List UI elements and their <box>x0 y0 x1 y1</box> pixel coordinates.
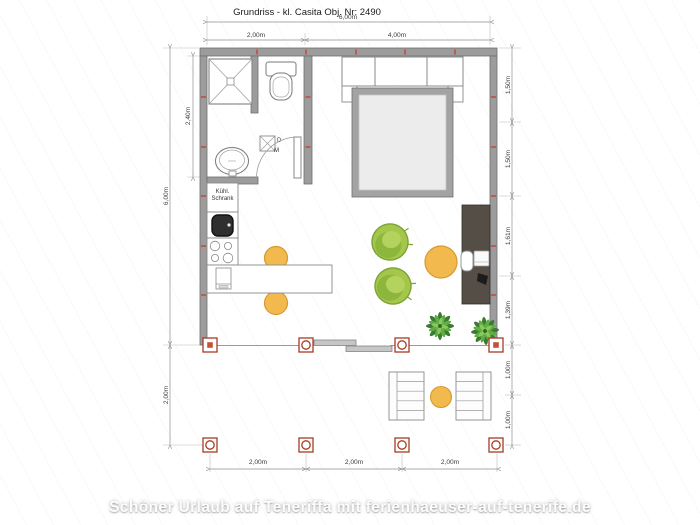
shower <box>209 59 252 104</box>
column-post <box>203 338 217 352</box>
dim-top-total: 6,00m <box>339 14 358 21</box>
dim-right-3: 1,61m <box>505 226 512 245</box>
sun-lounger <box>389 372 424 420</box>
terrace-table <box>431 387 452 408</box>
dishwasher <box>216 268 231 289</box>
column-post <box>489 338 503 352</box>
dim-right-6: 1,00m <box>505 410 512 429</box>
bathroom-door <box>294 137 301 178</box>
dim-bottom-1: 2,00m <box>249 459 268 466</box>
washer-box <box>260 136 275 151</box>
dim-top-left: 2,00m <box>247 32 266 39</box>
potted-plant <box>426 312 454 340</box>
watermark-text: Schöner Urlaub auf Teneriffa mit ferienh… <box>109 499 591 517</box>
laptop <box>474 251 489 266</box>
cooktop <box>207 238 238 265</box>
wall-left <box>200 56 207 345</box>
bar-stool <box>265 292 288 315</box>
dim-top-right: 4,00m <box>388 32 407 39</box>
fridge-label-line1: Kühl. <box>216 189 230 195</box>
column-post <box>395 438 409 452</box>
dim-right-5: 1,00m <box>505 360 512 379</box>
toilet <box>266 62 296 100</box>
column-post <box>203 438 217 452</box>
sun-lounger <box>456 372 491 420</box>
headboard <box>342 57 463 86</box>
column-post <box>489 438 503 452</box>
dim-left-terrace: 2,00m <box>163 385 170 404</box>
column-post <box>299 338 313 352</box>
wall-bathroom-divider <box>304 56 312 184</box>
dim-bottom-2: 2,00m <box>345 459 364 466</box>
coffee-table <box>425 246 457 278</box>
dim-right-4: 1,39m <box>505 300 512 319</box>
lounge-chair <box>368 219 415 264</box>
dim-left-bath: 2,40m <box>185 106 192 125</box>
dim-bottom-3: 2,00m <box>441 459 460 466</box>
plan-title: Grundriss - kl. Casita Obj. Nr: 2490 <box>233 7 381 18</box>
lounge-chair <box>371 264 418 309</box>
bathroom-sink <box>216 148 249 177</box>
dim-right-1: 1,50m <box>505 75 512 94</box>
dim-right-2: 1,50m <box>505 149 512 168</box>
desk-chair <box>461 251 473 271</box>
floorplan-canvas: Grundriss - kl. Casita Obj. Nr: 2490 6,0… <box>0 0 700 525</box>
column-post <box>299 438 313 452</box>
fridge-label-line2: Schrank <box>211 196 234 202</box>
column-post <box>395 338 409 352</box>
sliding-door <box>314 340 392 352</box>
dim-left-main: 6,00m <box>163 186 170 205</box>
wall-right <box>490 56 497 345</box>
floorplan-page: Grundriss - kl. Casita Obj. Nr: 2490 6,0… <box>0 0 700 525</box>
washer-label-m: M <box>274 148 279 154</box>
wall-top <box>200 48 497 56</box>
kitchen-sink <box>207 212 238 238</box>
bed <box>352 88 453 197</box>
